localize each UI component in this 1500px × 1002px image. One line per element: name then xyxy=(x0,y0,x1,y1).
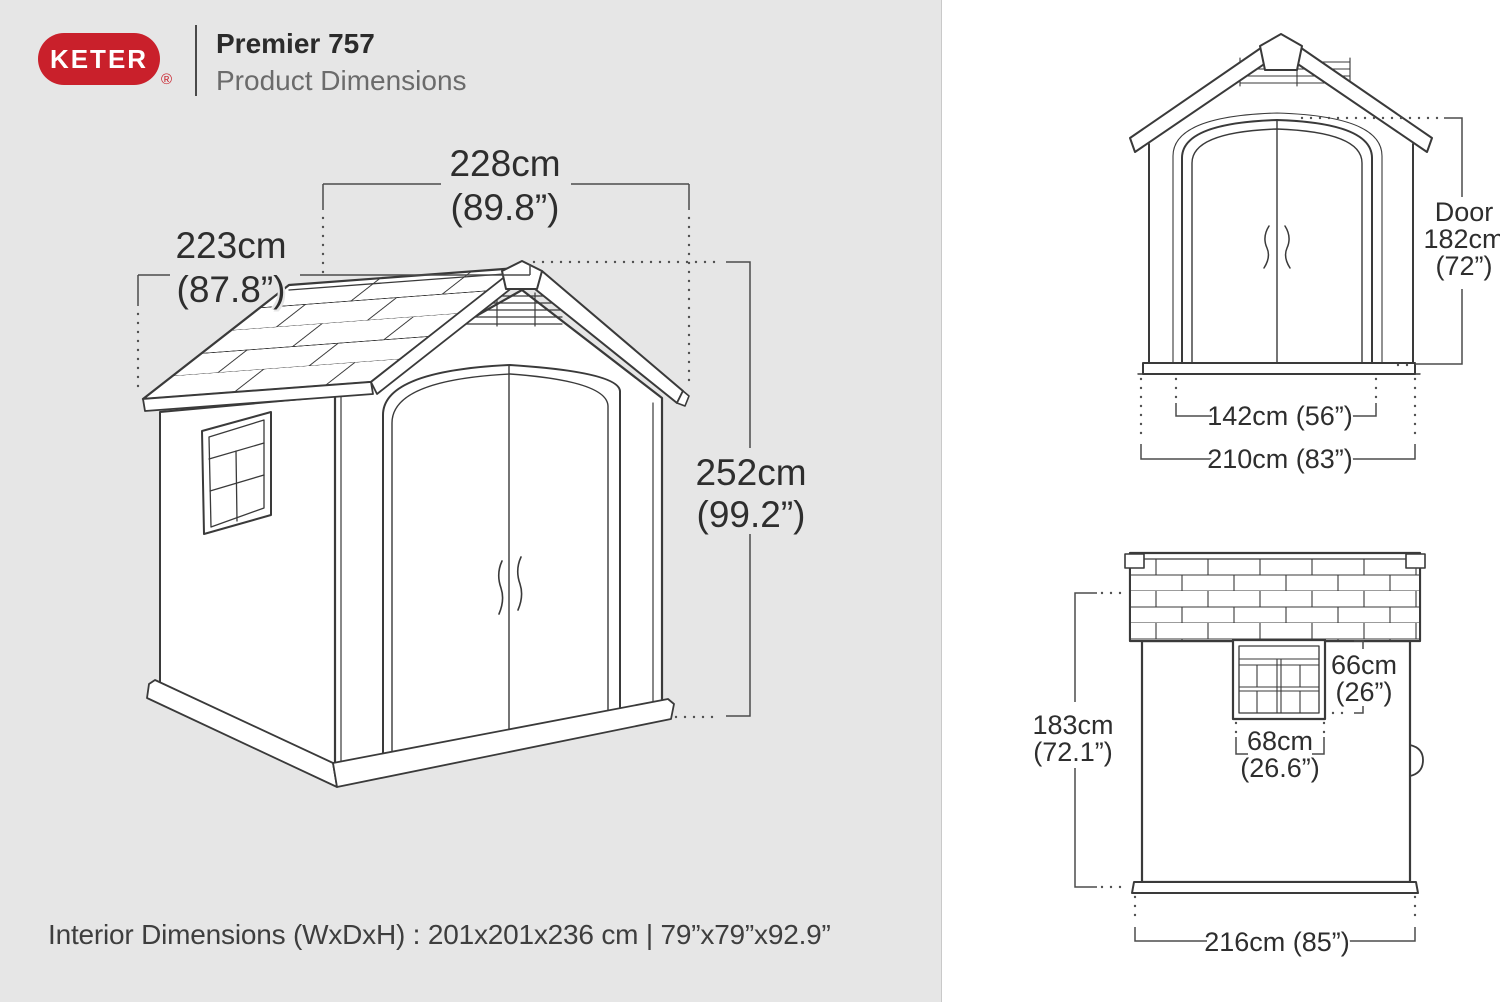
page-title: Premier 757 xyxy=(216,28,375,60)
dim-front-door-width: 142cm (56”) xyxy=(1207,403,1353,430)
iso-shed xyxy=(143,261,689,787)
brand-name: KETER xyxy=(50,44,148,75)
keter-logo: KETER xyxy=(38,33,160,85)
dim-side-window-width: 68cm (26.6”) xyxy=(1240,728,1320,782)
registered-mark-icon: ® xyxy=(161,71,172,88)
dim-side-window-height: 66cm (26”) xyxy=(1331,652,1397,706)
dim-front-door: Door 182cm (72”) xyxy=(1423,199,1500,280)
front-walls xyxy=(1149,144,1413,363)
front-finial xyxy=(1260,34,1302,70)
dim-iso-depth: 228cm (89.8”) xyxy=(449,142,560,230)
side-ridge-cap-right xyxy=(1406,554,1425,568)
side-base xyxy=(1132,882,1418,893)
front-extension-dots xyxy=(1141,118,1442,440)
dim-front-overall-width: 210cm (83”) xyxy=(1207,446,1353,473)
side-ridge-cap-left xyxy=(1125,554,1144,568)
dim-iso-width: 223cm (87.8”) xyxy=(175,224,286,312)
iso-window xyxy=(202,412,271,534)
page-subtitle: Product Dimensions xyxy=(216,65,467,97)
side-roof-shingles xyxy=(1131,559,1419,640)
dim-iso-height: 252cm (99.2”) xyxy=(695,452,806,536)
dim-side-height: 183cm (72.1”) xyxy=(1032,712,1113,766)
side-view xyxy=(1125,553,1425,893)
front-view xyxy=(1130,34,1432,374)
interior-dimensions-text: Interior Dimensions (WxDxH) : 201x201x23… xyxy=(48,919,831,951)
side-handle xyxy=(1410,745,1423,776)
front-rake-left xyxy=(1130,41,1276,152)
front-base xyxy=(1143,363,1415,374)
page: KETER ® Premier 757 Product Dimensions xyxy=(0,0,1500,1002)
side-window xyxy=(1233,640,1325,719)
dim-side-depth: 216cm (85”) xyxy=(1204,929,1350,956)
header-divider xyxy=(195,25,197,96)
